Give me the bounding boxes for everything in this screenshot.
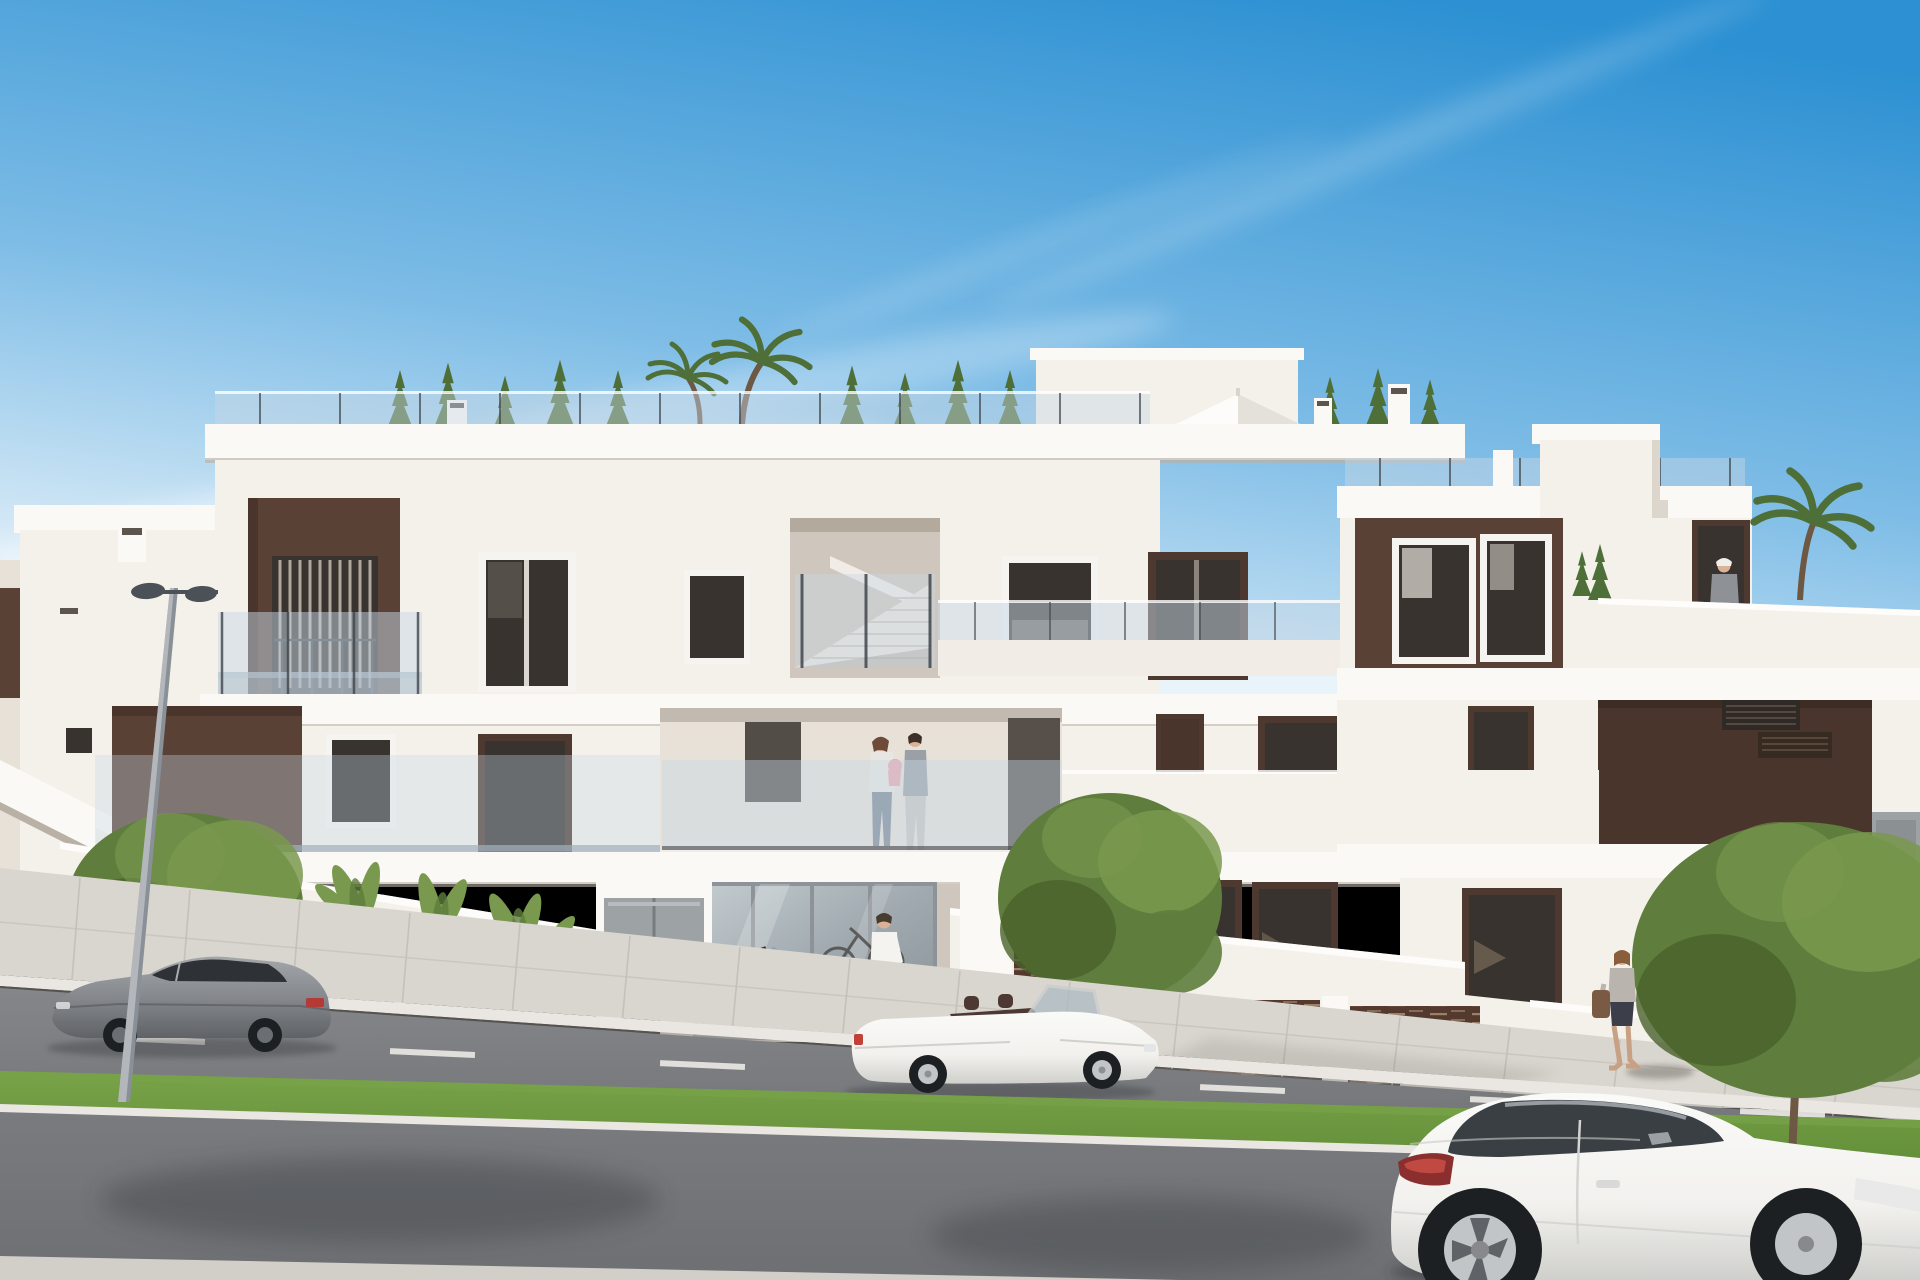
window-right-bay [1392, 534, 1552, 664]
open-staircase-bay [790, 518, 940, 678]
architectural-render-scene [0, 0, 1920, 1280]
floor-slab [200, 852, 1465, 884]
window-upper-left [478, 552, 576, 692]
glass-balustrade-centre [662, 760, 1062, 850]
glass-balustrade-upper-left [218, 612, 422, 694]
door-handle [1596, 1180, 1620, 1188]
floor-slab [1337, 668, 1920, 702]
chimney [1493, 450, 1513, 486]
headlight [56, 1002, 70, 1009]
roof-parapet-slab [205, 424, 1465, 460]
tree-shadow [930, 1197, 1370, 1273]
handbag [1592, 990, 1610, 1018]
roof-glass-railing [215, 391, 1150, 426]
taillight [854, 1034, 863, 1045]
neighbour-window [66, 728, 92, 753]
taillight [306, 998, 324, 1007]
brown-feature-bay-right [1355, 518, 1563, 670]
balcony-centre [660, 708, 1062, 860]
window-upper-centre-left [684, 570, 750, 664]
tree-shadow [100, 1158, 660, 1242]
window-ground-right [1462, 888, 1562, 1010]
